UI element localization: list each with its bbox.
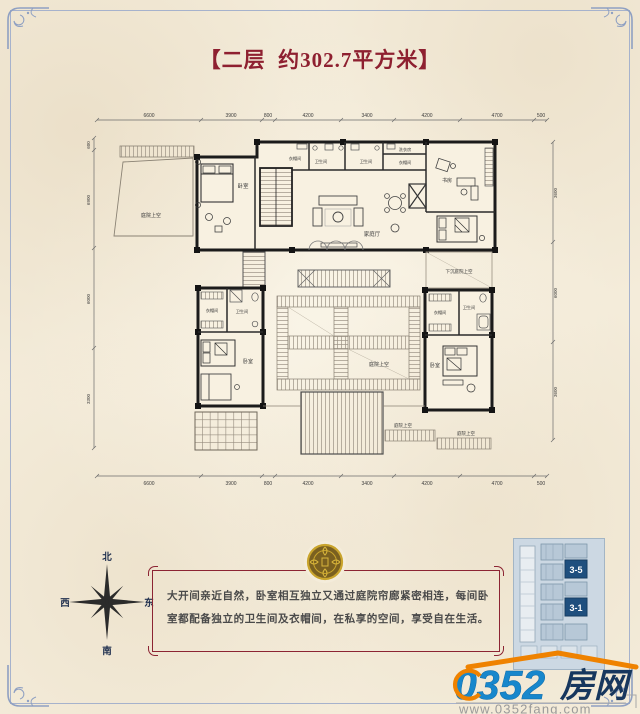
room-label-bedroom: 卧室 <box>237 182 249 190</box>
dim-label: 3900 <box>225 481 236 487</box>
room-label-cloakroom: 衣帽间 <box>399 159 412 166</box>
room-label-laundry: 洗衣房 <box>399 146 412 153</box>
dim-label: 3400 <box>361 481 372 487</box>
staircase-main <box>260 168 292 226</box>
frame-corner-ornament <box>3 663 51 711</box>
sunken-courtyard: 下沉庭院上空 <box>426 252 492 288</box>
dim-label: 3400 <box>361 113 372 119</box>
logo-cn: 房网 <box>559 667 633 705</box>
courtyard-bridge <box>243 252 390 288</box>
dim-label: 6000 <box>86 293 91 304</box>
grand-stair <box>301 392 383 454</box>
box-corner-ornament <box>494 566 504 576</box>
dim-label: 3300 <box>86 393 91 404</box>
floor-plan: 6600 3900 800 4200 3400 4200 4700 500 66… <box>85 100 590 490</box>
room-label-courtyard: 庭院上空 <box>394 422 412 429</box>
dim-label: 4200 <box>302 481 313 487</box>
compass-rose: 北 南 西 东 <box>57 548 157 656</box>
room-label-courtyard: 庭院上空 <box>369 361 389 368</box>
dim-label: 800 <box>264 113 273 119</box>
room-label-cloakroom: 衣帽间 <box>434 309 447 316</box>
dim-label: 3600 <box>553 187 558 198</box>
dim-label: 500 <box>537 481 546 487</box>
compass-south-label: 南 <box>102 645 112 656</box>
dim-label: 4200 <box>302 113 313 119</box>
page: 【二层 约302.7平方米】 6600 3900 800 4200 3400 <box>0 0 640 714</box>
dimension-line-top: 6600 3900 800 4200 3400 4200 4700 500 <box>95 113 549 122</box>
box-corner-ornament <box>148 566 158 576</box>
room-label-sunken-courtyard: 下沉庭院上空 <box>446 268 473 275</box>
logo-url: www.0352fang.com <box>458 702 592 714</box>
dim-label: 6600 <box>143 481 154 487</box>
dim-label: 4200 <box>421 113 432 119</box>
central-courtyard: 庭院上空 <box>277 296 420 390</box>
bedroom-suite-right: 衣帽间 卫生间 卧室 <box>422 287 495 413</box>
dimension-line-left: 600 6900 6000 3300 <box>86 136 96 450</box>
description-text: 大开间亲近自然，卧室相互独立又通过庭院帘廊紧密相连，每间卧室都配备独立的卫生间及… <box>167 585 489 630</box>
seal-medallion-icon <box>303 540 347 584</box>
dim-label: 6900 <box>86 194 91 205</box>
unit-label: 3-5 <box>569 565 582 575</box>
dim-label: 4200 <box>421 481 432 487</box>
dim-label: 3900 <box>225 113 236 119</box>
bedroom-suite-left: 衣帽间 卫生间 卧室 <box>195 285 266 409</box>
page-title: 【二层 约302.7平方米】 <box>0 44 640 74</box>
bookshelf-icon <box>485 148 493 186</box>
dim-label: 4700 <box>491 481 502 487</box>
room-label-study: 书房 <box>442 177 452 184</box>
room-label-cloakroom: 衣帽间 <box>289 155 302 162</box>
room-label-bedroom: 卧室 <box>243 358 253 365</box>
terrace-courtyard-left: 庭院上空 <box>114 146 194 236</box>
dim-label: 6600 <box>143 113 154 119</box>
staircase-small <box>243 252 265 288</box>
room-label-bedroom: 卧室 <box>430 362 440 369</box>
room-label-bathroom: 卫生间 <box>463 304 476 311</box>
dim-label: 600 <box>86 141 91 149</box>
dim-label: 3600 <box>553 386 558 397</box>
dimension-line-bottom: 6600 3900 800 4200 3400 4200 4700 500 <box>95 474 549 487</box>
room-label-courtyard: 庭院上空 <box>141 212 161 219</box>
dim-label: 6000 <box>553 287 558 298</box>
room-label-courtyard: 庭院上空 <box>457 430 475 437</box>
room-label-bathroom: 卫生间 <box>236 308 249 315</box>
room-label-bathroom: 卫生间 <box>315 158 328 165</box>
room-label-family-hall: 家庭厅 <box>364 230 381 238</box>
dim-label: 800 <box>264 481 273 487</box>
site-logo: 0352 房网 www.0352fang.com <box>446 650 640 714</box>
unit-label: 3-1 <box>569 603 582 613</box>
room-label-bathroom: 卫生间 <box>360 158 373 165</box>
dim-label: 4700 <box>491 113 502 119</box>
dimension-line-right: 3600 6000 3600 <box>551 140 558 442</box>
room-label-cloakroom: 衣帽间 <box>206 307 219 314</box>
dim-label: 500 <box>537 113 546 119</box>
compass-north-label: 北 <box>102 551 112 563</box>
compass-west-label: 西 <box>60 598 70 609</box>
upper-wing: 衣帽间 卫生间 卫生间 衣帽间 洗衣房 卧室 <box>194 139 498 253</box>
